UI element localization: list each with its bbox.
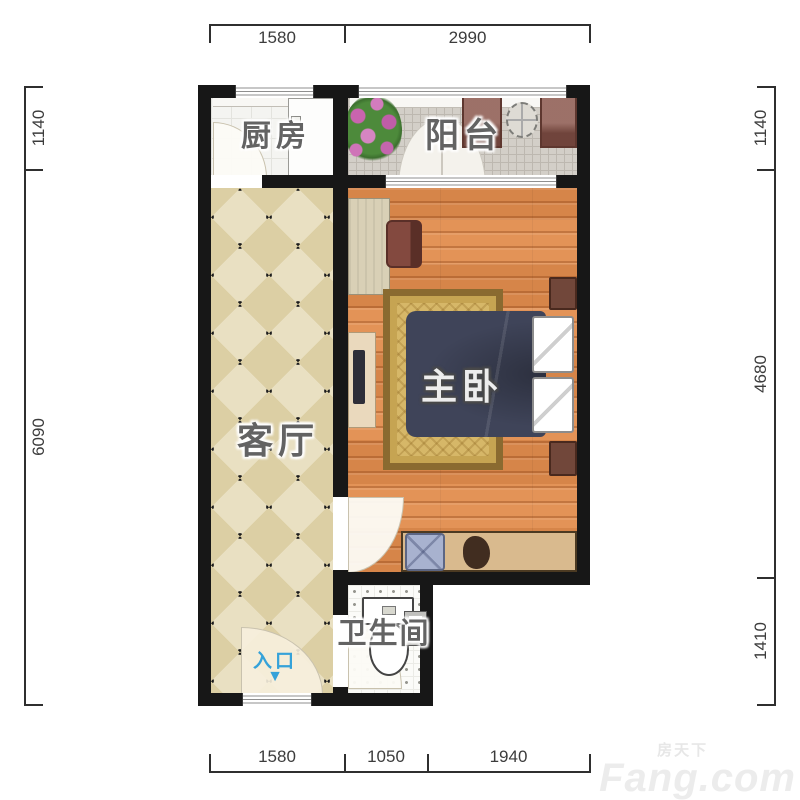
dim-right-3: 1410 — [752, 611, 770, 671]
nightstand-bottom — [549, 441, 577, 476]
dim-right-1: 1140 — [752, 98, 770, 158]
dim-tick — [757, 704, 776, 706]
nightstand-top — [549, 277, 577, 310]
bedroom-door-opening — [333, 497, 348, 570]
wall-kitchen-south — [262, 175, 385, 188]
balcony-chair-right — [540, 93, 577, 148]
dim-tick — [344, 754, 346, 773]
dim-tick — [757, 169, 776, 171]
wall-bottom — [198, 693, 433, 706]
desk-chair — [386, 220, 422, 268]
dim-bottom-2: 1050 — [345, 748, 427, 766]
bedroom-label: 主卧 — [392, 358, 532, 410]
dim-tick — [209, 24, 211, 43]
tv-icon — [353, 350, 365, 404]
floor-plan: 厨房 阳台 客厅 主卧 卫生间 入口 ▼ 1580 2990 1580 1050… — [0, 0, 800, 800]
entrance-door — [242, 693, 312, 706]
dim-tick — [757, 577, 776, 579]
kitchen-label: 厨房 — [206, 111, 346, 155]
fang-watermark: 房天下 Fang.com — [599, 743, 796, 798]
dim-line-bottom — [210, 771, 590, 773]
fang-watermark-brand: Fang.com — [599, 758, 796, 798]
dim-line-top — [210, 24, 590, 26]
dim-tick — [24, 704, 43, 706]
dim-tick — [589, 754, 591, 773]
dim-top-1: 1580 — [210, 29, 344, 47]
wall-left — [198, 85, 211, 706]
wall-living-bathroom-lower — [333, 687, 348, 706]
dim-bottom-1: 1580 — [210, 748, 344, 766]
dim-tick — [427, 754, 429, 773]
kitchen-door-opening — [213, 175, 262, 188]
blue-stool — [405, 533, 445, 571]
dim-tick — [24, 86, 43, 88]
dim-right-2: 4680 — [752, 344, 770, 404]
bedroom-desk — [348, 198, 390, 295]
pillow-top — [532, 316, 574, 373]
dim-line-left — [24, 87, 26, 706]
entrance-arrow-icon: ▼ — [240, 668, 310, 686]
wall-balcony-south-right — [555, 175, 590, 188]
wall-bedroom-bottom — [333, 572, 590, 585]
dim-tick — [209, 754, 211, 773]
dim-tick — [344, 24, 346, 43]
pillow-bottom — [532, 377, 574, 433]
dim-tick — [24, 169, 43, 171]
dim-top-2: 2990 — [345, 29, 590, 47]
kitchen-window — [235, 85, 314, 98]
balcony-label: 阳台 — [394, 108, 534, 157]
dim-line-right — [774, 87, 776, 706]
wall-living-bedroom-mid — [333, 570, 348, 615]
living-room-label: 客厅 — [208, 412, 348, 464]
dim-bottom-3: 1940 — [428, 748, 589, 766]
dim-left-2: 6090 — [30, 407, 48, 467]
dim-left-1: 1140 — [30, 98, 48, 158]
balcony-sliding-door — [385, 175, 557, 188]
bathroom-label: 卫生间 — [324, 610, 444, 652]
wall-right — [577, 85, 590, 585]
handbag — [463, 536, 490, 569]
balcony-window — [358, 85, 567, 98]
dim-tick — [589, 24, 591, 43]
dim-tick — [757, 86, 776, 88]
